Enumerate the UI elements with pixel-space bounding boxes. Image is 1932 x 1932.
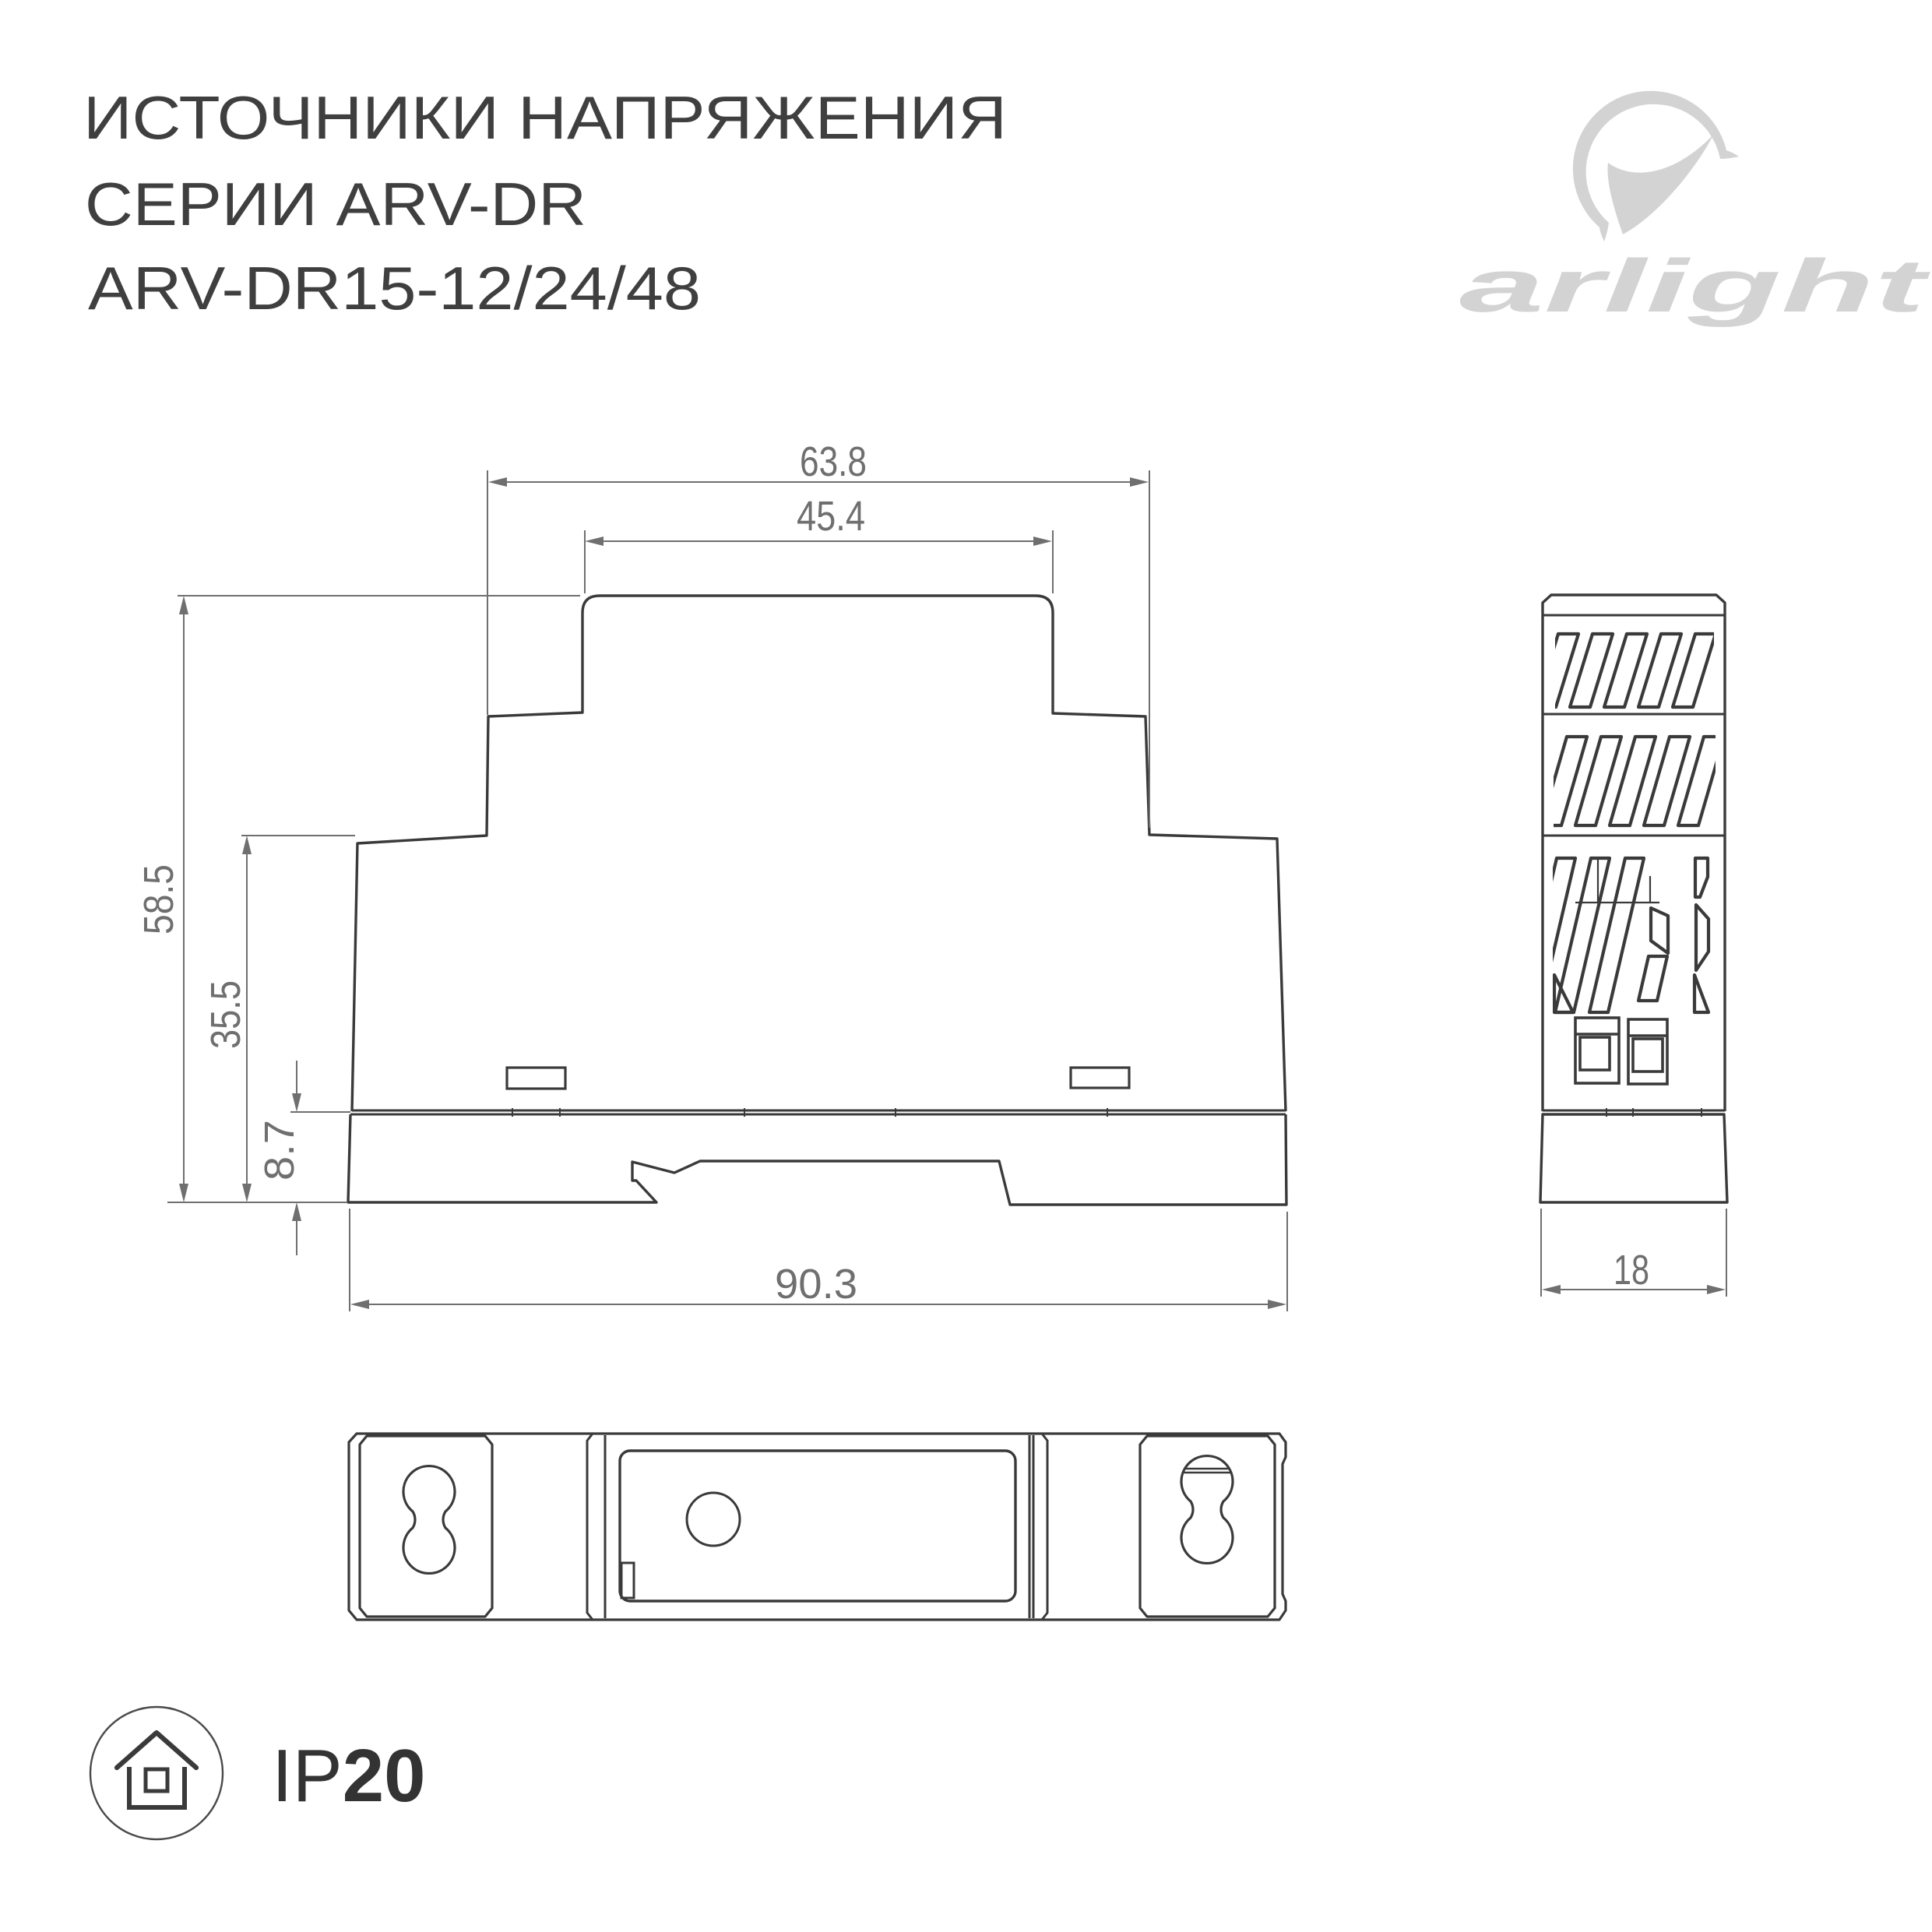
svg-text:ARV-DR15-12/24/48: ARV-DR15-12/24/48 xyxy=(88,254,701,322)
svg-text:58.5: 58.5 xyxy=(135,864,182,934)
svg-text:ИСТОЧНИКИ НАПРЯЖЕНИЯ: ИСТОЧНИКИ НАПРЯЖЕНИЯ xyxy=(83,83,1007,152)
svg-text:45.4: 45.4 xyxy=(797,493,865,540)
svg-text:90.3: 90.3 xyxy=(775,1261,857,1307)
svg-text:СЕРИИ ARV-DR: СЕРИИ ARV-DR xyxy=(85,170,586,238)
svg-text:8.7: 8.7 xyxy=(256,1120,303,1181)
svg-text:35.5: 35.5 xyxy=(202,980,249,1049)
svg-text:63.8: 63.8 xyxy=(800,438,867,485)
svg-text:IP20: IP20 xyxy=(272,1734,425,1818)
svg-text:arlight: arlight xyxy=(1459,245,1931,328)
svg-text:18: 18 xyxy=(1614,1247,1649,1293)
